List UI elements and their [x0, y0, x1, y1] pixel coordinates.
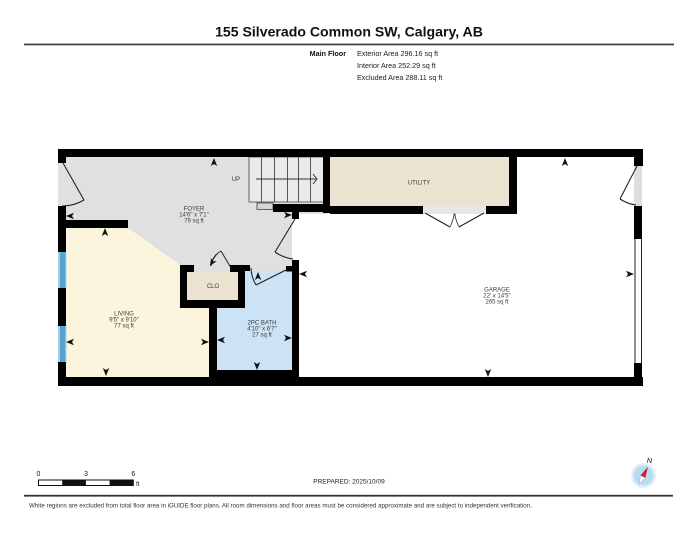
svg-text:White regions are excluded fro: White regions are excluded from total fl…: [29, 503, 532, 510]
svg-text:Exterior Area 296.16 sq ft: Exterior Area 296.16 sq ft: [357, 49, 438, 58]
svg-text:6: 6: [131, 471, 135, 478]
svg-text:155 Silverado Common SW, Calga: 155 Silverado Common SW, Calgary, AB: [215, 24, 483, 40]
svg-text:0: 0: [37, 471, 41, 478]
svg-text:UTILITY: UTILITY: [408, 181, 430, 187]
svg-text:Main Floor: Main Floor: [310, 49, 347, 58]
svg-text:27 sq ft: 27 sq ft: [252, 333, 272, 339]
svg-text:Excluded Area 288.11 sq ft: Excluded Area 288.11 sq ft: [357, 73, 442, 82]
svg-text:3: 3: [84, 471, 88, 478]
svg-text:N: N: [647, 456, 653, 465]
svg-text:ft: ft: [136, 481, 140, 488]
svg-text:77 sq ft: 77 sq ft: [114, 324, 134, 330]
svg-text:CLO: CLO: [207, 284, 220, 290]
svg-text:79 sq ft: 79 sq ft: [184, 219, 204, 225]
svg-text:Interior Area 252.29 sq ft: Interior Area 252.29 sq ft: [357, 61, 436, 70]
svg-text:UP: UP: [232, 177, 240, 183]
svg-text:265 sq ft: 265 sq ft: [485, 300, 508, 306]
svg-text:PREPARED: 2025/10/09: PREPARED: 2025/10/09: [313, 479, 385, 486]
